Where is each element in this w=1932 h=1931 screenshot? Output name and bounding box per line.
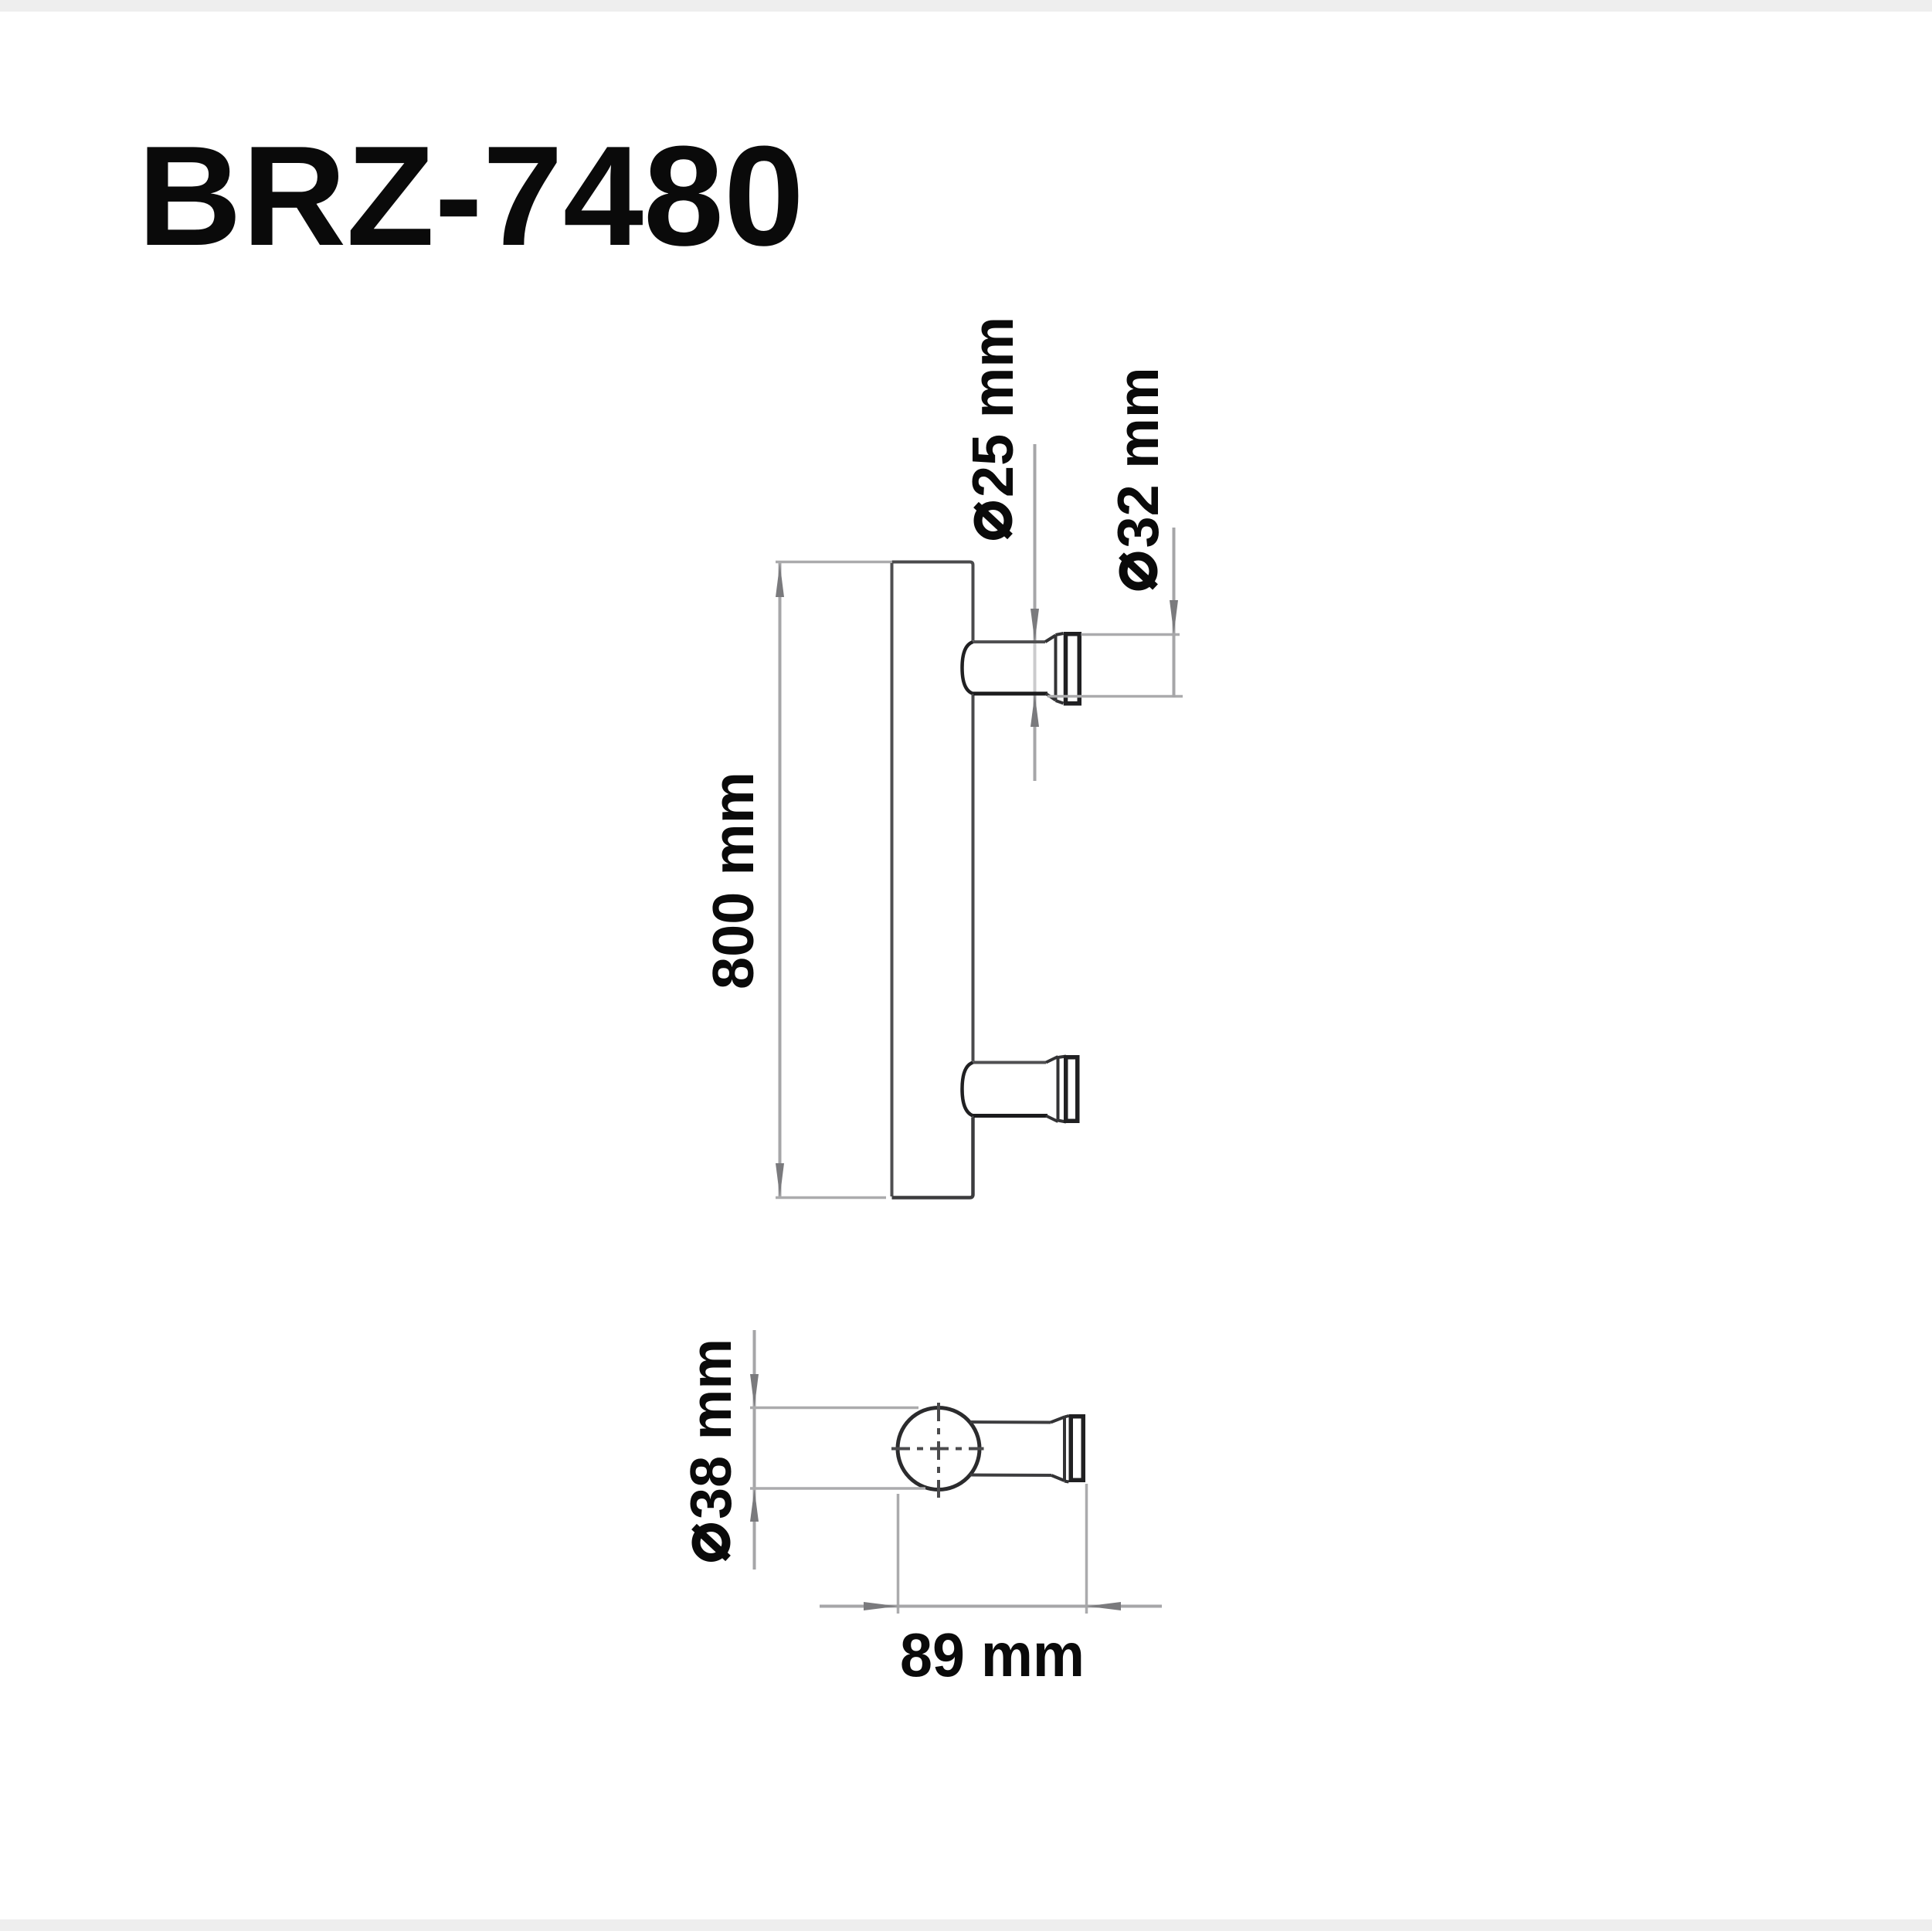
svg-text:800 mm: 800 mm	[701, 772, 766, 989]
svg-text:25 mm: 25 mm	[960, 317, 1025, 497]
svg-text:32 mm: 32 mm	[1105, 368, 1170, 548]
svg-text:89 mm: 89 mm	[900, 1620, 1085, 1689]
svg-text:38 mm: 38 mm	[678, 1339, 743, 1519]
svg-text:BRZ-7480: BRZ-7480	[138, 116, 804, 275]
